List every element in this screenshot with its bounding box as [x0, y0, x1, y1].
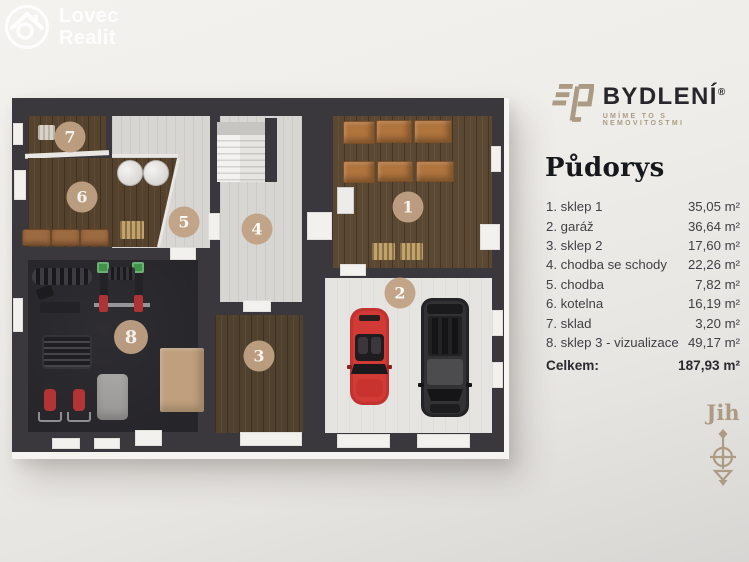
room-area: 17,60 m²: [688, 238, 740, 253]
radiator: [38, 125, 55, 140]
gym-bike: [67, 384, 91, 423]
room-area: 36,64 m²: [688, 219, 740, 234]
storage-crate: [377, 161, 413, 182]
room-label: 1. sklep 1: [546, 199, 602, 214]
brand-logo: BYDLENÍ® UMÍME TO S NEMOVITOSTMI: [545, 76, 749, 127]
total-label: Celkem:: [546, 358, 599, 373]
door-opening: [208, 213, 220, 240]
room-list-item: 7. sklad3,20 m²: [546, 313, 740, 332]
gym-bike: [38, 384, 62, 423]
room-list-item: 1. sklep 135,05 m²: [546, 197, 740, 216]
stairs-landing: [217, 122, 265, 135]
room-badge-5: 5: [169, 207, 200, 238]
gym-bench: [40, 302, 80, 313]
window-opening: [492, 310, 503, 336]
gym-red-plate: [99, 295, 108, 312]
room-label: 4. chodba se schody: [546, 257, 667, 272]
white-cabinet: [337, 187, 354, 214]
bydleni-icon: [545, 76, 594, 126]
room-3-sklep2-floor: [215, 315, 303, 433]
window-opening: [14, 170, 26, 200]
watermark-logo: Lovec Realit: [3, 3, 119, 51]
room-label: 2. garáž: [546, 219, 594, 234]
room-badge-2: 2: [385, 278, 416, 309]
room-label: 3. sklep 2: [546, 238, 602, 253]
window-opening: [13, 123, 23, 145]
room-label: 8. sklep 3 - vizualizace: [546, 335, 679, 350]
gym-mat: [97, 374, 128, 420]
garage-door-opening: [417, 434, 470, 448]
compass-label: Jih: [700, 400, 746, 425]
bench: [80, 229, 109, 246]
pallet: [400, 243, 423, 260]
room-badge-7: 7: [55, 122, 86, 153]
room-list-item: 3. sklep 217,60 m²: [546, 236, 740, 255]
wall-highlight: [112, 154, 178, 157]
window-opening: [492, 362, 503, 388]
stairs-flight-left: [217, 135, 240, 182]
room-list-item: 8. sklep 3 - vizualizace49,17 m²: [546, 333, 740, 352]
brand-name: BYDLENÍ®: [603, 81, 749, 109]
stairs-wall: [265, 118, 277, 182]
watermark-line2: Realit: [59, 27, 119, 49]
door-opening: [340, 264, 366, 276]
watermark-line1: Lovec: [59, 5, 119, 27]
gym-platform-box: [160, 348, 204, 412]
room-label: 7. sklad: [546, 316, 591, 331]
boiler-tank: [117, 160, 143, 186]
door-opening: [135, 430, 162, 446]
door-opening: [243, 300, 271, 312]
gym-treadmill: [42, 335, 92, 369]
boiler-tank: [143, 160, 169, 186]
gym-rack-barbell: [108, 267, 135, 280]
lovec-realit-icon: [3, 3, 51, 51]
brand-tagline: UMÍME TO S NEMOVITOSTMI: [603, 113, 749, 127]
room-list-item: 6. kotelna16,19 m²: [546, 294, 740, 313]
floor-plan: 1 2 3 4 5 6 7 8: [12, 98, 509, 459]
total-value: 187,93 m²: [678, 358, 740, 373]
bench: [51, 229, 80, 246]
room-area: 3,20 m²: [695, 316, 740, 331]
bench: [22, 229, 51, 246]
door-opening: [240, 432, 302, 446]
room-label: 5. chodba: [546, 277, 604, 292]
room-area: 49,17 m²: [688, 335, 740, 350]
room-list-item: 4. chodba se schody22,26 m²: [546, 255, 740, 274]
red-convertible-car: [347, 307, 392, 406]
room-badge-1: 1: [393, 192, 424, 223]
black-suv-car: [418, 297, 472, 418]
window-opening: [52, 438, 80, 449]
room-area: 22,26 m²: [688, 257, 740, 272]
window-opening: [94, 438, 120, 449]
storage-crate: [343, 121, 375, 144]
storage-crate: [416, 161, 454, 182]
registered-mark: ®: [718, 87, 727, 98]
total-row: Celkem: 187,93 m²: [546, 358, 740, 373]
garage-door-opening: [337, 434, 390, 448]
room-badge-6: 6: [67, 182, 98, 213]
room-badge-3: 3: [244, 341, 275, 372]
storage-crate: [376, 120, 412, 143]
gym-barbell-row: [32, 268, 92, 285]
room-label: 6. kotelna: [546, 296, 603, 311]
compass-south-icon: [705, 428, 741, 488]
room-list-item: 5. chodba7,82 m²: [546, 275, 740, 294]
door-opening: [307, 212, 332, 240]
gym-red-plate: [134, 295, 143, 312]
page-title: Půdorys: [545, 153, 665, 183]
room-area: 7,82 m²: [695, 277, 740, 292]
pallet: [372, 243, 395, 260]
window-opening: [491, 146, 501, 172]
brand-name-text: BYDLENÍ: [603, 83, 718, 110]
room-list-item: 2. garáž36,64 m²: [546, 216, 740, 235]
room-area: 16,19 m²: [688, 296, 740, 311]
page: Lovec Realit: [0, 0, 749, 562]
room-area: 35,05 m²: [688, 199, 740, 214]
room-badge-4: 4: [242, 214, 273, 245]
room-list: 1. sklep 135,05 m² 2. garáž36,64 m² 3. s…: [546, 197, 740, 352]
door-opening: [170, 247, 196, 260]
door-opening: [480, 224, 500, 250]
storage-crate: [343, 161, 375, 183]
stairs-flight-right: [240, 135, 265, 182]
pallet: [120, 221, 144, 239]
window-opening: [13, 298, 23, 332]
storage-crate: [414, 120, 452, 143]
room-badge-8: 8: [114, 320, 148, 354]
